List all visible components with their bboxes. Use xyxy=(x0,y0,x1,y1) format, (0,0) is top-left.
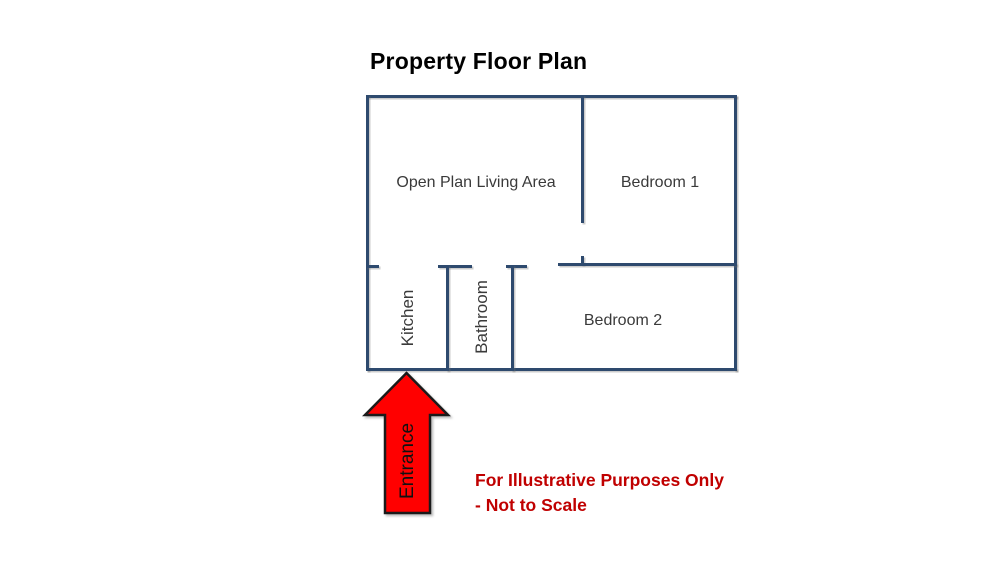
floor-plan-canvas: Property Floor Plan Open Plan Living Are… xyxy=(0,0,1000,562)
room-label-bedroom-1: Bedroom 1 xyxy=(621,174,699,192)
wall-outer-left xyxy=(366,95,369,371)
wall-middle-segment-kitchen xyxy=(438,265,472,268)
wall-middle-segment-left xyxy=(366,265,379,268)
room-label-kitchen: Kitchen xyxy=(398,290,418,347)
wall-outer-top xyxy=(366,95,737,98)
room-label-living-area: Open Plan Living Area xyxy=(396,174,555,192)
room-label-bedroom-2: Bedroom 2 xyxy=(584,312,662,330)
wall-bedroom1-divider xyxy=(581,95,584,223)
wall-bathroom-bedroom2-divider xyxy=(511,265,514,371)
disclaimer-line-1: For Illustrative Purposes Only xyxy=(475,468,724,493)
wall-outer-right xyxy=(734,95,737,371)
room-label-bathroom: Bathroom xyxy=(472,280,492,354)
entrance-label: Entrance xyxy=(397,400,419,522)
wall-middle-segment-bedroom2 xyxy=(558,263,737,266)
page-title: Property Floor Plan xyxy=(370,48,587,75)
disclaimer-line-2: - Not to Scale xyxy=(475,493,724,518)
wall-middle-segment-bathroom xyxy=(506,265,527,268)
wall-kitchen-bathroom-divider xyxy=(446,265,449,371)
disclaimer-text: For Illustrative Purposes Only - Not to … xyxy=(475,468,724,518)
